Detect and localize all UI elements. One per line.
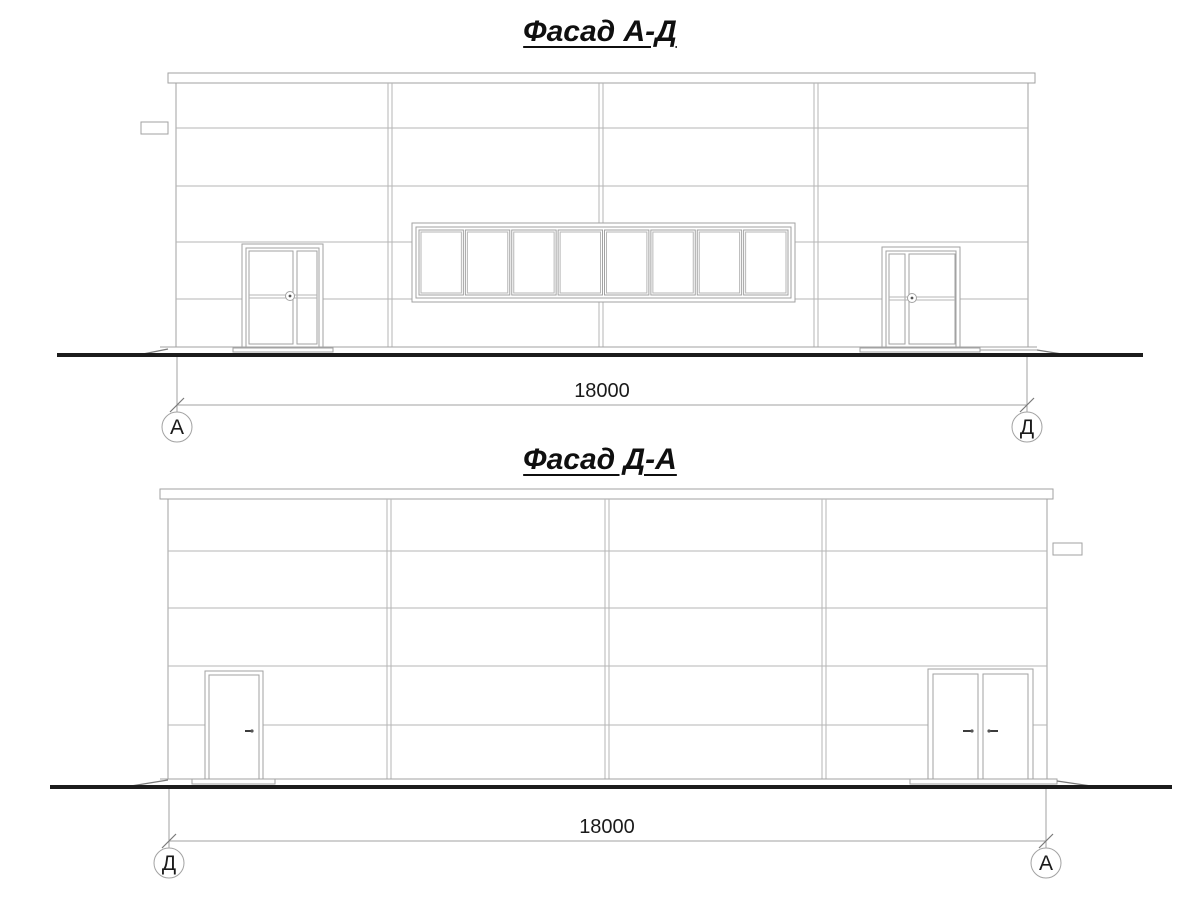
facade-da-view: 18000 Д А bbox=[50, 489, 1172, 878]
porch-slab bbox=[233, 348, 333, 352]
axis-label-left: Д bbox=[162, 852, 176, 875]
porch-slab bbox=[192, 779, 275, 784]
ground-line bbox=[50, 785, 1172, 789]
parapet bbox=[168, 73, 1035, 83]
window-pane bbox=[558, 230, 602, 295]
door-frame bbox=[928, 669, 1033, 779]
dimension-ad: 18000 А Д bbox=[162, 357, 1042, 442]
parapet bbox=[160, 489, 1053, 499]
axis-label-right: Д bbox=[1020, 416, 1034, 439]
window-pane bbox=[419, 230, 463, 295]
door-handle-icon bbox=[289, 295, 292, 298]
wall-outlet bbox=[1053, 543, 1082, 555]
dimension-label: 18000 bbox=[574, 380, 630, 402]
door-handle-icon bbox=[987, 729, 990, 732]
porch-slab bbox=[910, 779, 1057, 784]
axis-label-right: А bbox=[1039, 852, 1053, 875]
drawing-sheet: Фасад А-Д Фасад Д-А bbox=[0, 0, 1200, 900]
double-door-right bbox=[928, 669, 1033, 779]
porch-slab bbox=[860, 348, 980, 352]
door-handle-icon bbox=[250, 729, 253, 732]
window-pane bbox=[651, 230, 695, 295]
window-pane bbox=[605, 230, 649, 295]
window-pane bbox=[512, 230, 556, 295]
door-handle-icon bbox=[911, 297, 914, 300]
facade-ad-view: 18000 А Д bbox=[57, 73, 1143, 442]
window-band bbox=[412, 223, 795, 302]
window-pane bbox=[744, 230, 788, 295]
elevation-canvas: 18000 А Д bbox=[0, 0, 1200, 900]
window-pane bbox=[697, 230, 741, 295]
entrance-door-right bbox=[882, 247, 960, 348]
single-door-left bbox=[205, 671, 263, 779]
axis-label-left: А bbox=[170, 416, 184, 439]
door-handle-icon bbox=[970, 729, 973, 732]
wall-outlet bbox=[141, 122, 168, 134]
door-frame bbox=[205, 671, 263, 779]
dimension-label: 18000 bbox=[579, 816, 635, 838]
window-pane bbox=[465, 230, 509, 295]
ground-line bbox=[57, 353, 1143, 357]
door-frame bbox=[242, 244, 323, 348]
wall bbox=[168, 499, 1047, 779]
entrance-door-left bbox=[242, 244, 323, 348]
dimension-da: 18000 Д А bbox=[154, 789, 1061, 878]
